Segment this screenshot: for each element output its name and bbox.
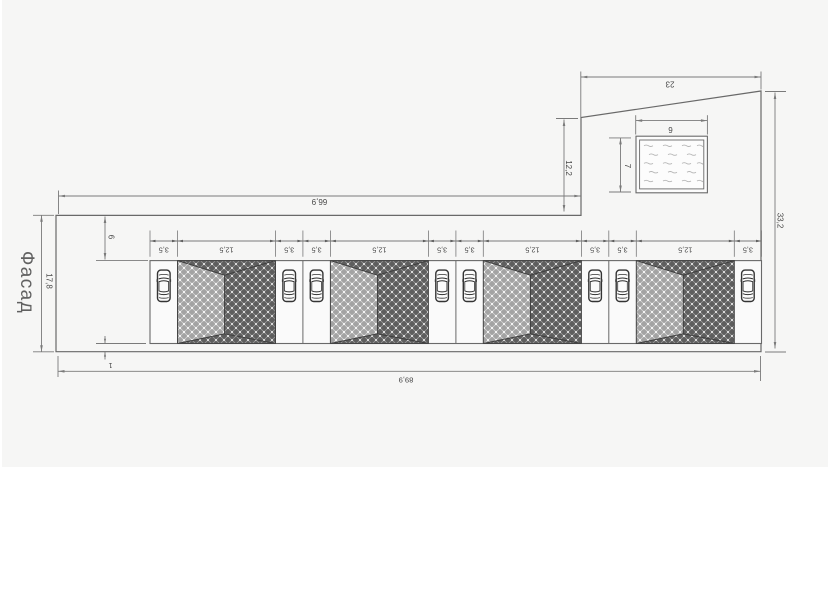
svg-text:6: 6 — [106, 235, 115, 240]
svg-text:3,5: 3,5 — [617, 245, 627, 254]
svg-text:89,9: 89,9 — [399, 375, 414, 384]
svg-text:3,5: 3,5 — [312, 245, 322, 254]
svg-text:3,5: 3,5 — [590, 245, 600, 254]
svg-text:12,5: 12,5 — [525, 245, 539, 254]
svg-text:6: 6 — [668, 125, 673, 134]
svg-text:Фасад: Фасад — [16, 251, 37, 314]
svg-text:23: 23 — [665, 79, 674, 88]
svg-text:17,8: 17,8 — [44, 273, 53, 289]
svg-text:3,5: 3,5 — [465, 245, 475, 254]
svg-text:12,5: 12,5 — [372, 245, 386, 254]
svg-text:3,5: 3,5 — [159, 245, 169, 254]
svg-text:12,5: 12,5 — [678, 245, 692, 254]
svg-text:3,5: 3,5 — [743, 245, 753, 254]
svg-text:1: 1 — [108, 361, 112, 368]
svg-text:33,2: 33,2 — [775, 213, 784, 229]
svg-text:3,5: 3,5 — [284, 245, 294, 254]
svg-text:66,9: 66,9 — [311, 197, 327, 206]
svg-text:7: 7 — [623, 164, 632, 169]
svg-text:12,2: 12,2 — [564, 160, 573, 176]
svg-text:3,5: 3,5 — [437, 245, 447, 254]
svg-text:12,5: 12,5 — [219, 245, 233, 254]
